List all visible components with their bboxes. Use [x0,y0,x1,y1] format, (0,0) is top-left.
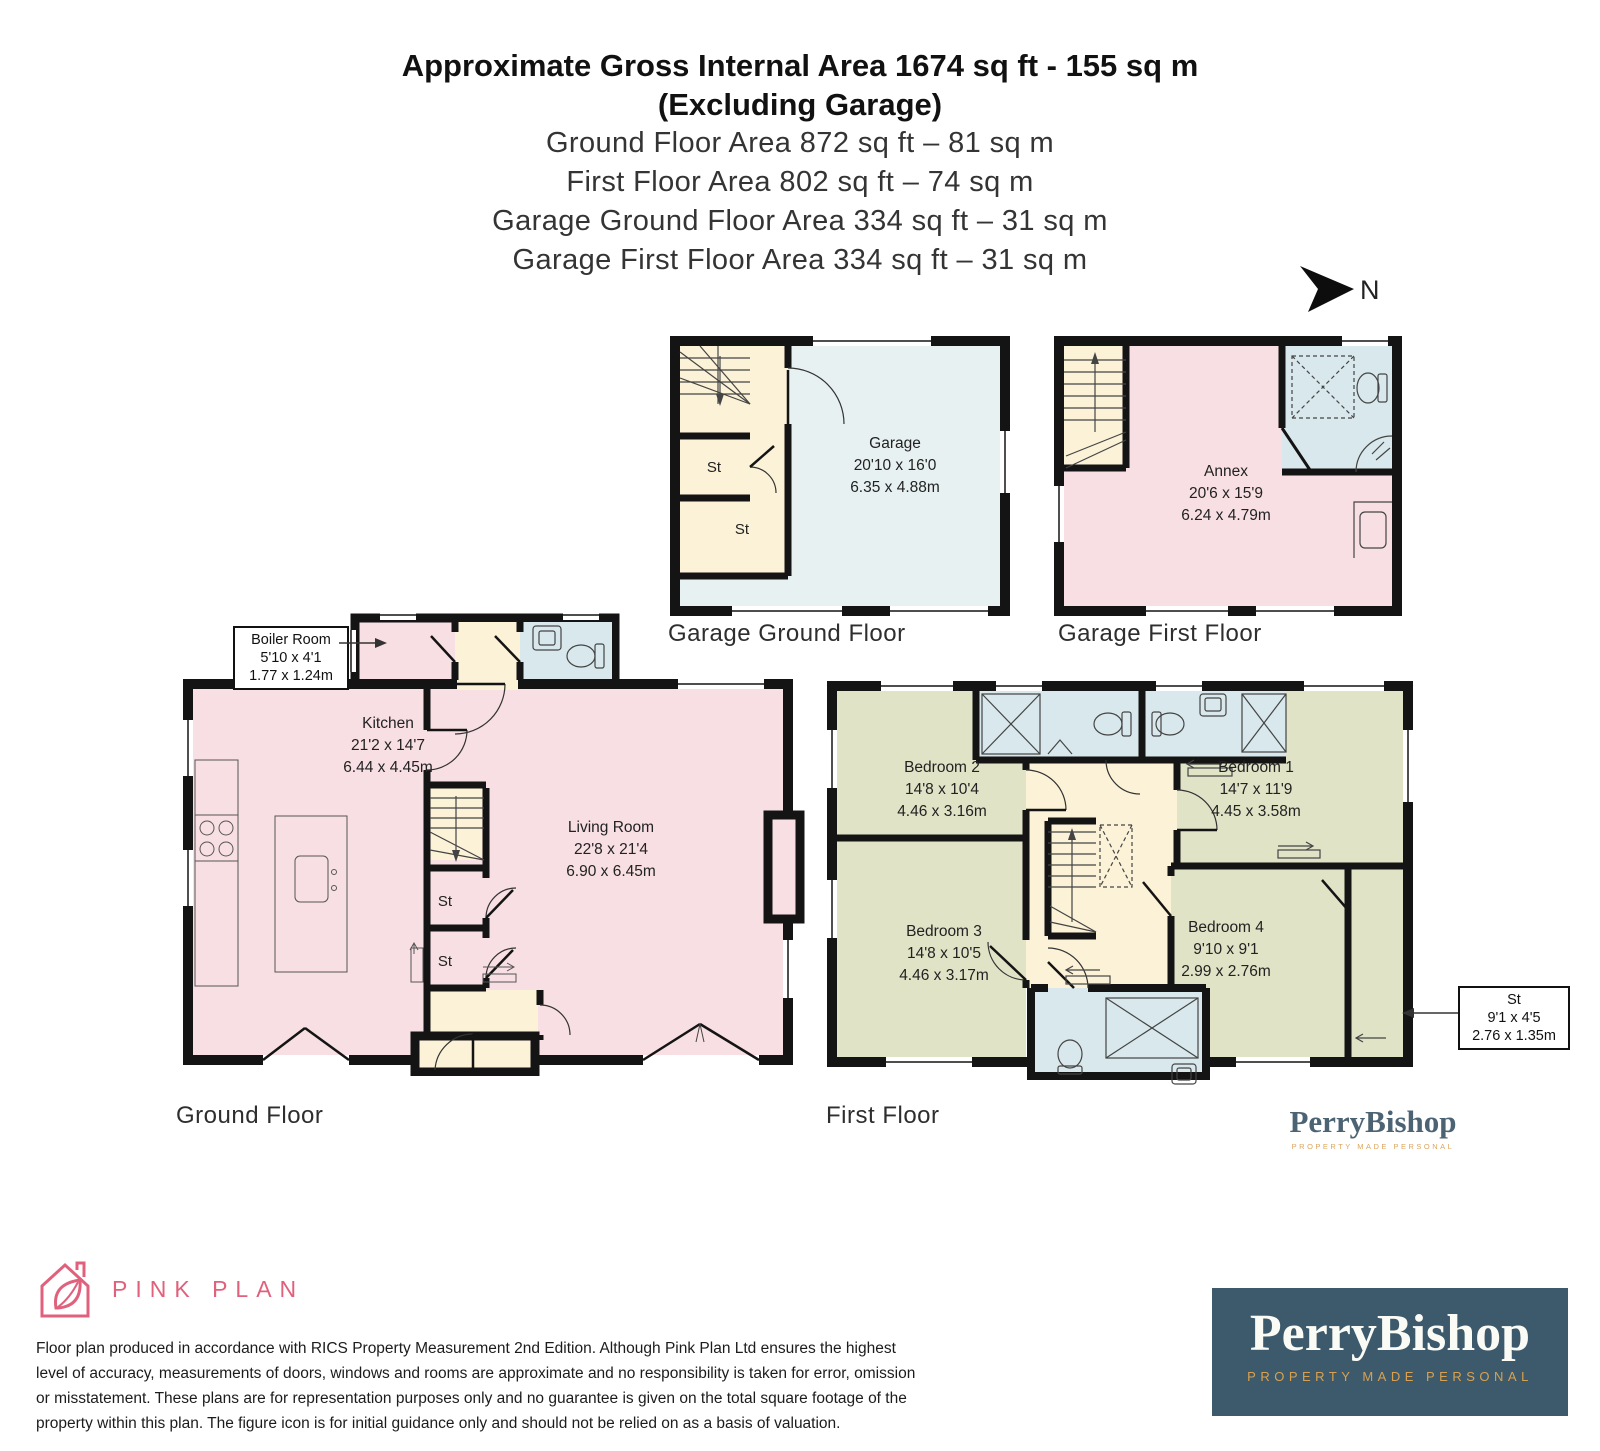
boiler-callout-arrow [339,634,389,652]
north-arrow-icon: N [1288,262,1400,320]
page-subtitle: (Excluding Garage) [0,85,1600,124]
disclaimer-text: Floor plan produced in accordance with R… [36,1336,931,1436]
perrybishop-small-tagline: PROPERTY MADE PERSONAL [1278,1142,1468,1151]
ground-floor-label: Ground Floor [176,1102,323,1130]
living-imperial: 22'8 x 21'4 [574,841,648,858]
garage-st1-label: St [707,459,722,476]
bedroom2-name: Bedroom 2 [904,759,980,776]
ground-st1-label: St [438,893,453,910]
bedroom3-metric: 4.46 x 3.17m [899,967,989,984]
bedroom1-metric: 4.45 x 3.58m [1211,803,1301,820]
floorplan-first: Bedroom 2 14'8 x 10'4 4.46 x 3.16m Bedro… [826,670,1426,1092]
bedroom3-imperial: 14'8 x 10'5 [907,945,981,962]
pinkplan-house-icon [36,1258,94,1320]
perrybishop-small-name: PerryBishop [1278,1104,1468,1140]
bedroom4-metric: 2.99 x 2.76m [1181,963,1271,980]
garage-room-imperial: 20'10 x 16'0 [854,457,937,474]
ground-st2-label: St [438,953,453,970]
st-callout-arrow [1400,1004,1458,1022]
perrybishop-box-name: PerryBishop [1212,1304,1568,1363]
st-callout: St 9'1 x 4'5 2.76 x 1.35m [1458,986,1570,1050]
garage-room-name: Garage [869,435,921,452]
bedroom2-metric: 4.46 x 3.16m [897,803,987,820]
bedroom4-name: Bedroom 4 [1188,919,1264,936]
north-label: N [1360,275,1380,305]
st-callout-name: St [1466,991,1562,1009]
living-name: Living Room [568,819,654,836]
annex-room-imperial: 20'6 x 15'9 [1189,485,1263,502]
area-line-first: First Floor Area 802 sq ft – 74 sq m [0,163,1600,202]
header: Approximate Gross Internal Area 1674 sq … [0,46,1600,280]
garage-st2-label: St [735,521,750,538]
floorplan-garage-ground: Garage 20'10 x 16'0 6.35 x 4.88m St St [670,336,1010,618]
bedroom3-name: Bedroom 3 [906,923,982,940]
boiler-metric: 1.77 x 1.24m [241,667,341,685]
kitchen-name: Kitchen [362,715,414,732]
kitchen-imperial: 21'2 x 14'7 [351,737,425,754]
st-callout-metric: 2.76 x 1.35m [1466,1027,1562,1045]
bedroom1-name: Bedroom 1 [1218,759,1294,776]
boiler-name: Boiler Room [241,631,341,649]
garage-first-floor-label: Garage First Floor [1058,620,1262,648]
garage-room-metric: 6.35 x 4.88m [850,479,940,496]
perrybishop-logo-box: PerryBishop PROPERTY MADE PERSONAL [1212,1288,1568,1416]
bedroom1-imperial: 14'7 x 11'9 [1220,781,1293,798]
perrybishop-box-tagline: PROPERTY MADE PERSONAL [1212,1369,1568,1384]
kitchen-metric: 6.44 x 4.45m [343,759,433,776]
area-line-ground: Ground Floor Area 872 sq ft – 81 sq m [0,124,1600,163]
boiler-room-callout: Boiler Room 5'10 x 4'1 1.77 x 1.24m [233,626,349,690]
area-line-garage-ground: Garage Ground Floor Area 334 sq ft – 31 … [0,202,1600,241]
floorplan-garage-first: Annex 20'6 x 15'9 6.24 x 4.79m [1054,336,1402,618]
living-metric: 6.90 x 6.45m [566,863,656,880]
annex-room-name: Annex [1204,463,1248,480]
bedroom4-imperial: 9'10 x 9'1 [1193,941,1258,958]
boiler-imperial: 5'10 x 4'1 [241,649,341,667]
page-title: Approximate Gross Internal Area 1674 sq … [0,46,1600,85]
annex-room-metric: 6.24 x 4.79m [1181,507,1271,524]
first-floor-label: First Floor [826,1102,940,1130]
st-callout-imperial: 9'1 x 4'5 [1466,1009,1562,1027]
floorplan-page: Approximate Gross Internal Area 1674 sq … [0,0,1600,1451]
pinkplan-wordmark: PINK PLAN [112,1276,304,1303]
bedroom2-imperial: 14'8 x 10'4 [905,781,979,798]
perrybishop-logo-small: PerryBishop PROPERTY MADE PERSONAL [1278,1104,1468,1151]
pinkplan-logo: PINK PLAN [36,1258,304,1320]
